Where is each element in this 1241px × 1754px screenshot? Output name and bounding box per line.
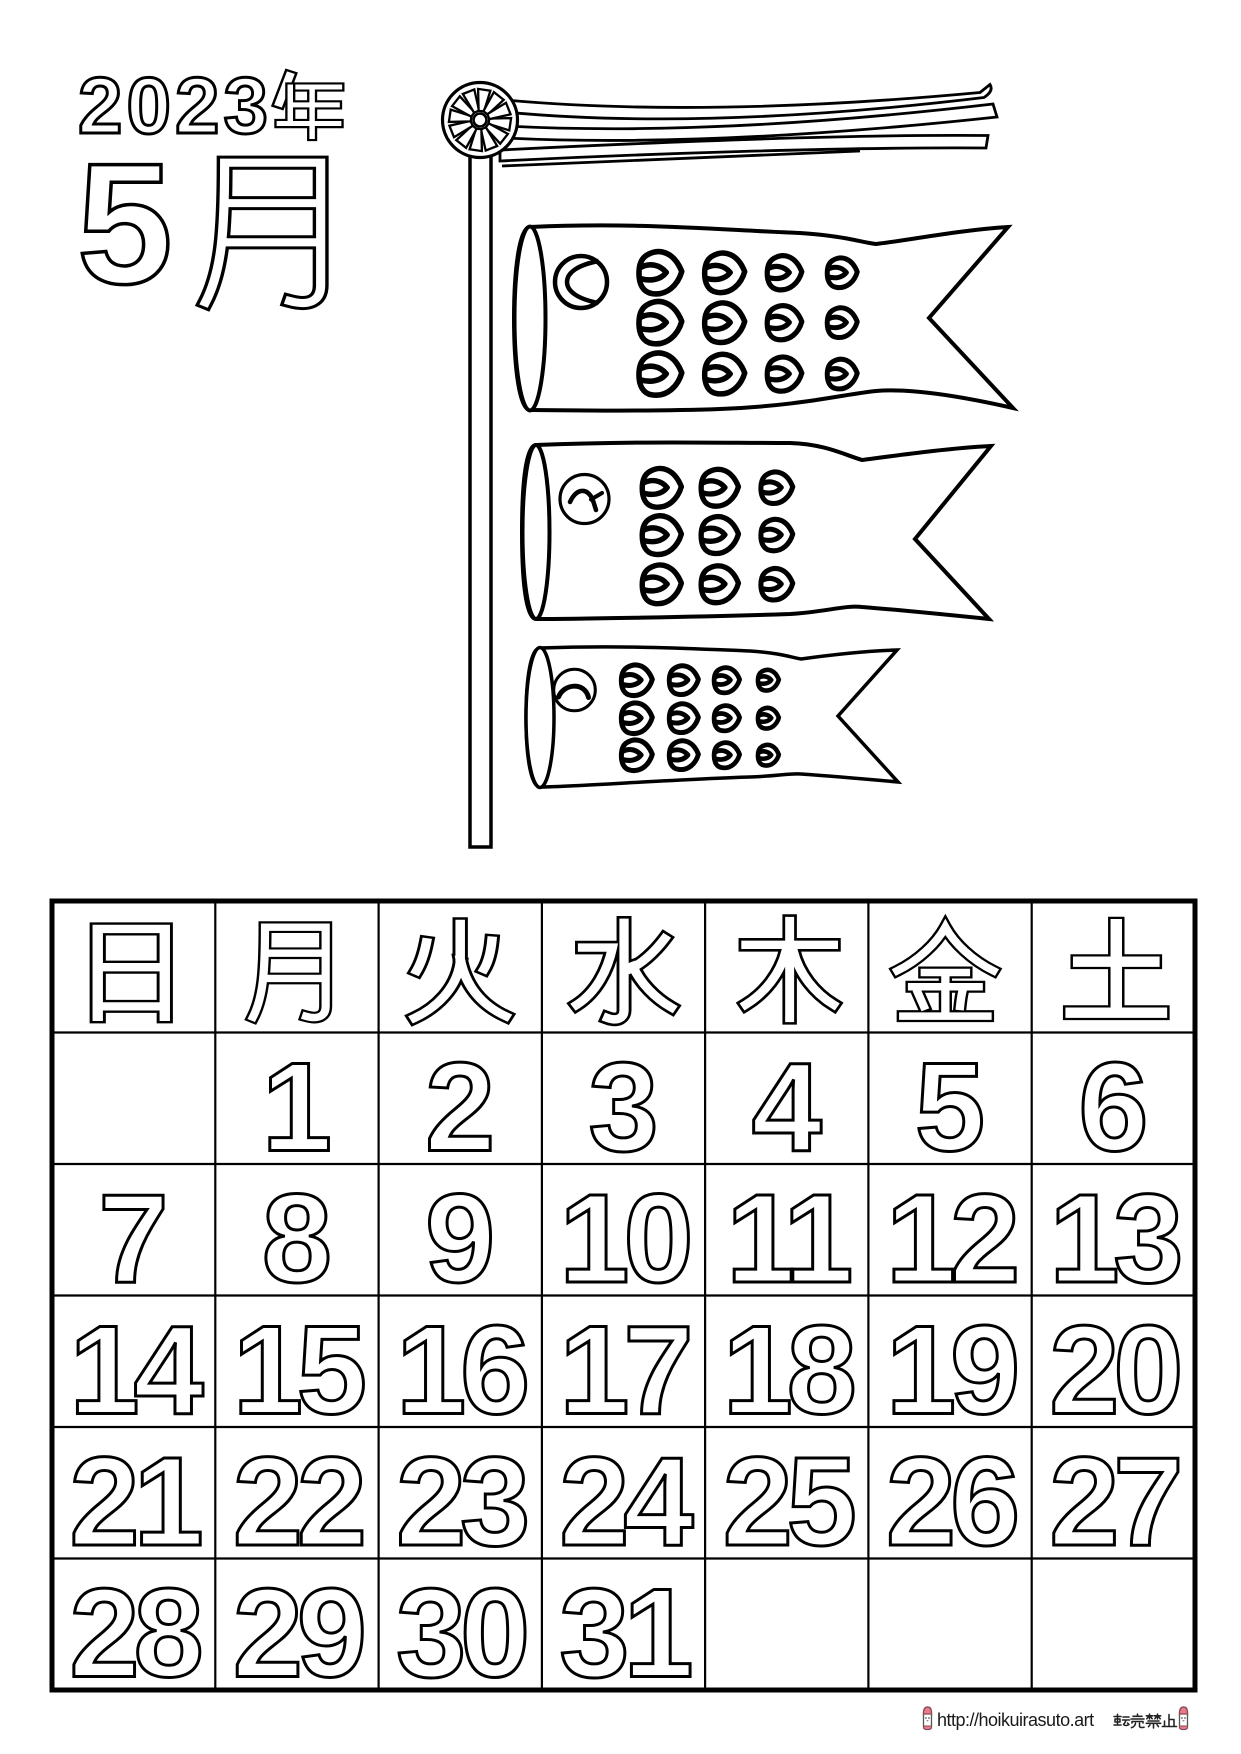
svg-text:27: 27 xyxy=(1049,1431,1178,1572)
svg-text:30: 30 xyxy=(396,1563,525,1704)
svg-text:3: 3 xyxy=(588,1037,658,1178)
svg-text:18: 18 xyxy=(723,1300,854,1441)
svg-text:21: 21 xyxy=(70,1431,201,1572)
svg-text:5: 5 xyxy=(77,128,173,320)
svg-text:20: 20 xyxy=(1049,1300,1178,1441)
svg-text:17: 17 xyxy=(559,1300,688,1441)
svg-text:19: 19 xyxy=(886,1300,1016,1441)
svg-text:9: 9 xyxy=(425,1168,495,1309)
svg-text:4: 4 xyxy=(752,1037,822,1178)
svg-text:24: 24 xyxy=(559,1431,693,1572)
svg-text:8: 8 xyxy=(262,1168,332,1309)
svg-text:5: 5 xyxy=(915,1037,985,1178)
svg-text:14: 14 xyxy=(70,1300,204,1441)
svg-text:10: 10 xyxy=(559,1168,688,1309)
svg-text:16: 16 xyxy=(396,1300,526,1441)
svg-text:7: 7 xyxy=(99,1168,169,1309)
svg-text:31: 31 xyxy=(559,1563,690,1704)
svg-text:1: 1 xyxy=(262,1037,332,1178)
svg-text:15: 15 xyxy=(233,1300,364,1441)
svg-text:29: 29 xyxy=(233,1563,363,1704)
svg-text:28: 28 xyxy=(70,1563,201,1704)
svg-text:22: 22 xyxy=(233,1431,363,1572)
svg-text:11: 11 xyxy=(726,1168,850,1309)
svg-text:http://hoikuirasuto.art: http://hoikuirasuto.art xyxy=(937,1710,1094,1730)
svg-text:2: 2 xyxy=(425,1037,495,1178)
svg-text:13: 13 xyxy=(1049,1168,1179,1309)
svg-text:26: 26 xyxy=(886,1431,1016,1572)
svg-text:6: 6 xyxy=(1078,1037,1148,1178)
svg-text:12: 12 xyxy=(886,1168,1016,1309)
svg-text:23: 23 xyxy=(396,1431,526,1572)
svg-text:25: 25 xyxy=(723,1431,854,1572)
